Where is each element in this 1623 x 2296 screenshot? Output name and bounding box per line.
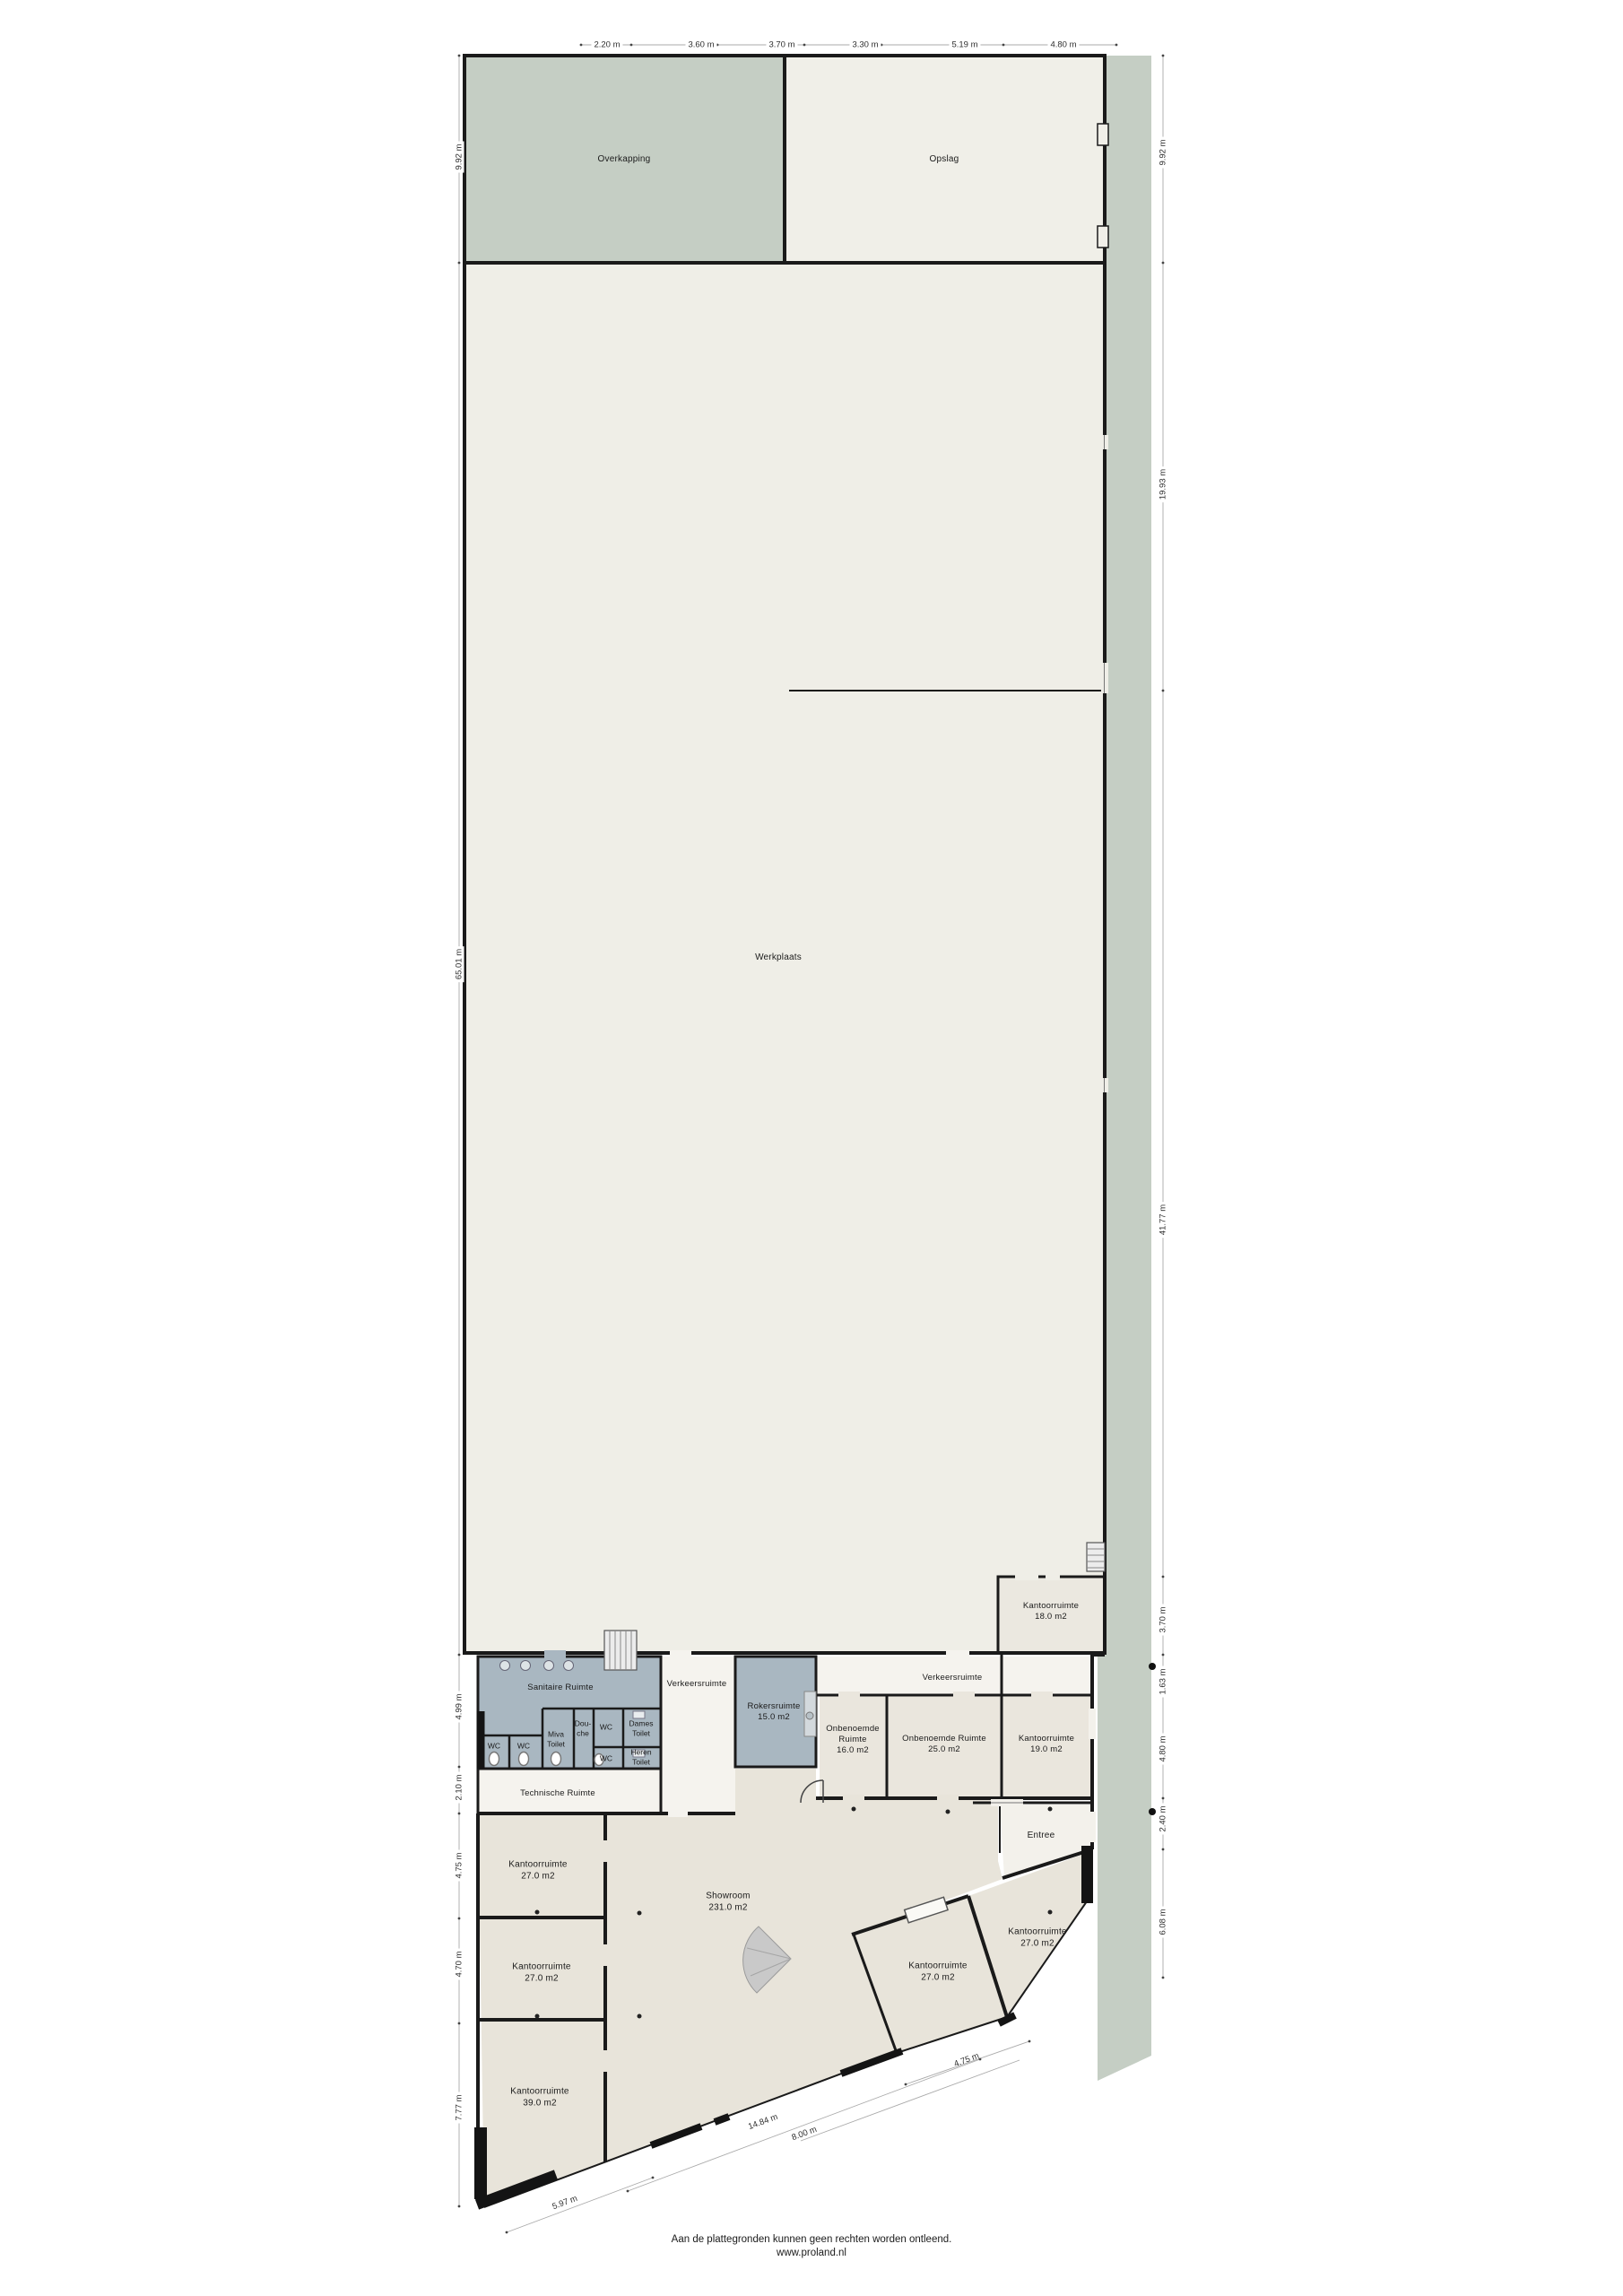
dim-left-2: 4.99 m (455, 1691, 464, 1722)
dim-right-3: 3.70 m (1159, 1604, 1168, 1635)
room-label-onbenoemde-ruimte-25: Onbenoemde Ruimte 25.0 m2 (902, 1734, 986, 1755)
room-label-kantoorruimte-27-3: Kantoorruimte 27.0 m2 (908, 1961, 967, 1984)
dim-left-1: 65.01 m (455, 946, 464, 982)
room-label-verkeersruimte-west: Verkeersruimte (667, 1679, 727, 1690)
room-label-miva-toilet: Miva Toilet (547, 1729, 565, 1748)
room-label-entree: Entree (1028, 1831, 1055, 1842)
dim-top-5: 4.80 m (1047, 40, 1079, 50)
door-leaf-icon (804, 1692, 816, 1736)
room-label-wc-2: WC (517, 1742, 530, 1752)
room-label-verkeersruimte-oost: Verkeersruimte (923, 1673, 983, 1683)
dim-left-5: 4.70 m (455, 1948, 464, 1979)
floorplan-canvas: Overkapping Opslag Werkplaats Kantoorrui… (0, 0, 1623, 2296)
room-label-wc-3: WC (600, 1723, 612, 1733)
room-label-douche: Dou- che (575, 1718, 591, 1737)
room-label-wc-1: WC (488, 1742, 500, 1752)
room-label-onbenoemde-ruimte-16: Onbenoemde Ruimte 16.0 m2 (826, 1724, 880, 1756)
room-label-kantoorruimte-27-2: Kantoorruimte 27.0 m2 (512, 1962, 570, 1985)
room-label-kantoorruimte-19: Kantoorruimte 19.0 m2 (1019, 1734, 1074, 1755)
dim-right-7: 6.08 m (1159, 1906, 1168, 1937)
dim-left-4: 4.75 m (455, 1849, 464, 1881)
stairs-icon (604, 1631, 637, 1670)
dim-top-3: 3.30 m (849, 40, 881, 50)
dim-left-0: 9.92 m (455, 141, 464, 172)
dim-right-6: 2.40 m (1159, 1803, 1168, 1834)
room-label-werkplaats: Werkplaats (755, 952, 802, 964)
wall-ladder-icon (1087, 1543, 1105, 1571)
floorplan-drawing (0, 0, 1623, 2296)
dim-top-2: 3.70 m (766, 40, 797, 50)
dim-left-6: 7.77 m (455, 2092, 464, 2123)
footer-website: www.proland.nl (777, 2247, 846, 2260)
dim-right-2: 41.77 m (1159, 1202, 1168, 1238)
room-label-technische-ruimte: Technische Ruimte (520, 1788, 595, 1799)
room-label-rokersruimte: Rokersruimte 15.0 m2 (748, 1701, 801, 1723)
dim-top-1: 3.60 m (685, 40, 716, 50)
dim-left-3: 2.10 m (455, 1771, 464, 1803)
room-label-wc-4: WC (600, 1754, 612, 1764)
room-label-kantoorruimte-27-1: Kantoorruimte 27.0 m2 (508, 1860, 567, 1883)
room-label-showroom: Showroom 231.0 m2 (706, 1892, 750, 1914)
dim-right-5: 4.80 m (1159, 1733, 1168, 1764)
room-label-heren-toilet: Heren Toilet (630, 1747, 651, 1766)
dim-top-0: 2.20 m (591, 40, 622, 50)
floor-fills (464, 56, 1105, 2208)
dim-top-4: 5.19 m (949, 40, 980, 50)
room-label-kantoorruimte-27-4: Kantoorruimte 27.0 m2 (1008, 1927, 1066, 1950)
dim-right-1: 19.93 m (1159, 466, 1168, 502)
room-label-sanitaire-ruimte: Sanitaire Ruimte (527, 1683, 593, 1693)
dim-right-4: 1.63 m (1159, 1665, 1168, 1697)
dim-right-0: 9.92 m (1159, 136, 1168, 168)
room-label-opslag: Opslag (930, 154, 959, 166)
room-label-overkapping: Overkapping (598, 154, 651, 166)
footer-disclaimer: Aan de plattegronden kunnen geen rechten… (672, 2233, 952, 2247)
room-label-kantoorruimte-18: Kantoorruimte 18.0 m2 (1023, 1601, 1079, 1622)
room-label-kantoorruimte-39: Kantoorruimte 39.0 m2 (510, 2087, 568, 2109)
room-label-dames-toilet: Dames Toilet (629, 1718, 654, 1737)
